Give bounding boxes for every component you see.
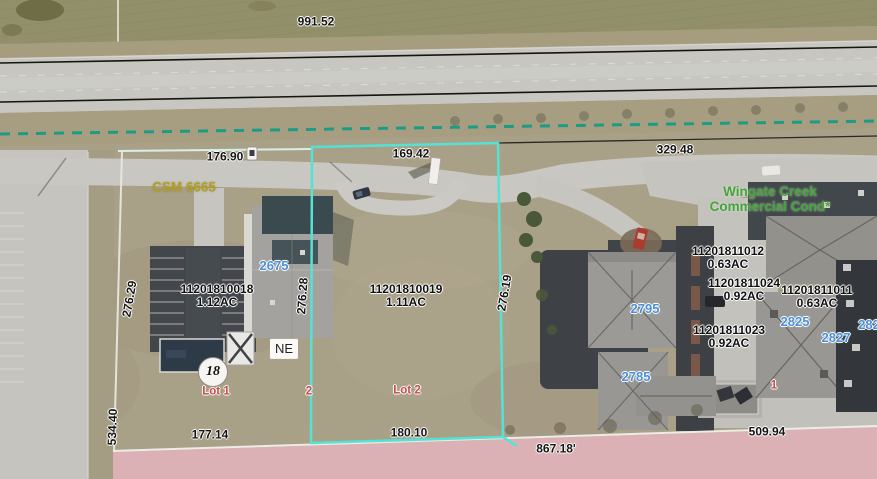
- lot-label: 2: [306, 386, 312, 399]
- highway-shield: 18: [198, 357, 228, 387]
- parcel-label: 11201811011 0.63AC: [781, 284, 852, 310]
- dimension-label: 509.94: [749, 425, 786, 438]
- parcel-label: 11201811023 0.92AC: [693, 324, 765, 350]
- parcel-label: 11201811024 0.92AC: [708, 277, 780, 303]
- parcel-label: 11201810019 1.11AC: [370, 283, 443, 309]
- transit-sign-icon: [247, 147, 257, 160]
- parcel-area: 1.12AC: [181, 296, 254, 309]
- address-label: 282: [858, 318, 877, 332]
- condo-name-line1: Wingate Creek: [710, 185, 831, 200]
- aerial-parcel-map[interactable]: 991.52 176.90 169.42 329.48 276.29 276.2…: [0, 0, 877, 479]
- aerial-basemap: [0, 0, 877, 479]
- car: [762, 165, 781, 175]
- lot-label: Lot 1: [202, 386, 229, 399]
- condo-name-line2: Commercial Cond*: [710, 200, 831, 215]
- parcel-area: 0.92AC: [693, 337, 765, 350]
- lot-label: 1: [771, 380, 777, 393]
- address-label: 2827: [822, 331, 851, 345]
- dimension-label: 867.18': [536, 442, 576, 455]
- highway-shield-number: 18: [206, 364, 220, 379]
- parcel-area: 0.63AC: [692, 258, 764, 271]
- condo-name-label: Wingate Creek Commercial Cond*: [710, 185, 831, 215]
- parcel-label: 11201810018 1.12AC: [181, 283, 254, 309]
- dimension-label: 169.42: [393, 147, 430, 160]
- dimension-label: 329.48: [657, 143, 694, 156]
- dimension-label: 176.90: [207, 150, 244, 163]
- survey-label: CSM 6665: [152, 181, 216, 196]
- lot-label: Lot 2: [393, 385, 420, 398]
- parcel-area: 0.92AC: [708, 290, 780, 303]
- dimension-label: 534.40: [106, 408, 120, 445]
- dimension-label: 180.10: [391, 426, 428, 439]
- address-label: 2795: [631, 302, 660, 316]
- parcel-area: 0.63AC: [781, 297, 852, 310]
- parcel-area: 1.11AC: [370, 296, 443, 309]
- address-label: 2675: [260, 259, 289, 273]
- address-label: 2825: [781, 315, 810, 329]
- address-label: 2785: [622, 370, 651, 384]
- dimension-label: 991.52: [298, 15, 335, 28]
- direction-box: NE: [270, 339, 298, 359]
- parcel-label: 11201811012 0.63AC: [692, 245, 764, 271]
- dimension-label: 177.14: [192, 428, 229, 441]
- dimension-label: 276.28: [295, 277, 311, 315]
